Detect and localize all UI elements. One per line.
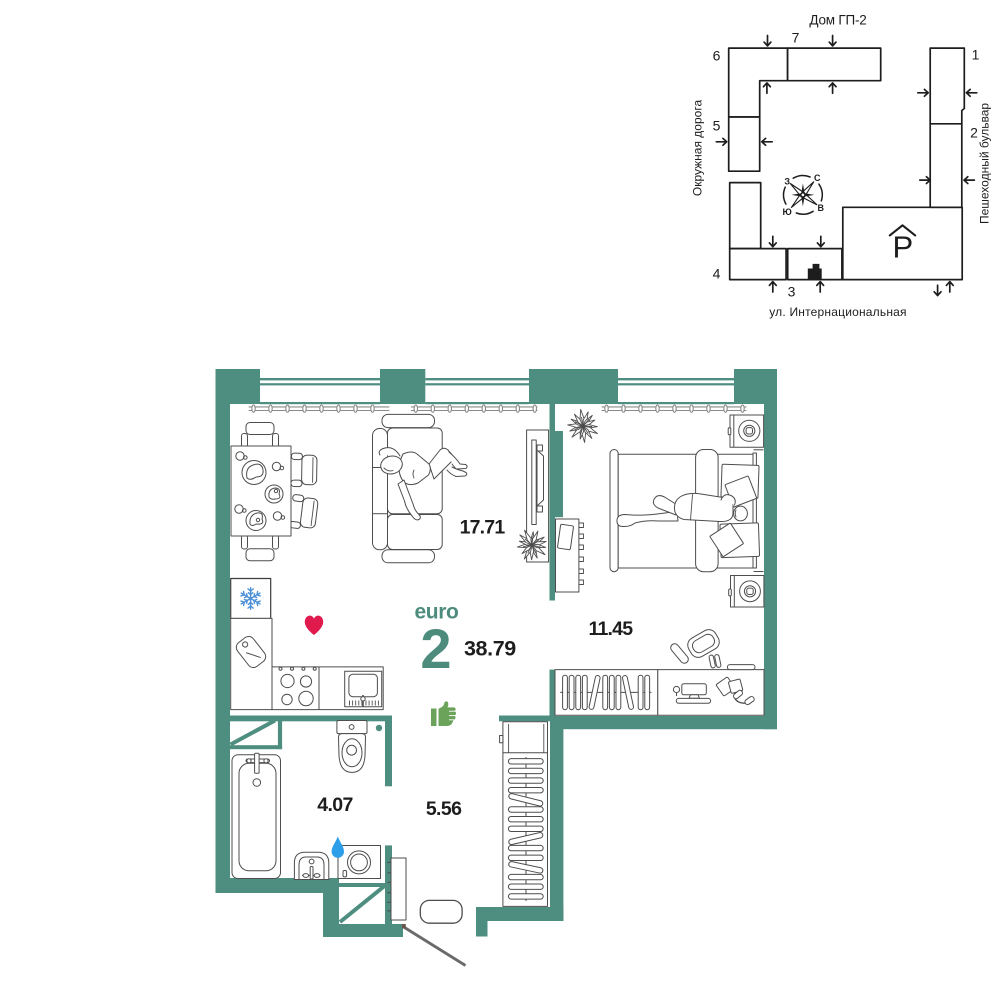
svg-text:Окружная дорога: Окружная дорога: [691, 100, 705, 197]
svg-text:P: P: [892, 230, 913, 265]
svg-text:4: 4: [713, 266, 721, 282]
svg-text:1: 1: [972, 47, 980, 63]
svg-text:11.45: 11.45: [589, 618, 634, 640]
svg-text:5.56: 5.56: [426, 798, 462, 820]
svg-text:6: 6: [713, 48, 721, 64]
svg-text:Дом ГП-2: Дом ГП-2: [809, 13, 866, 28]
svg-text:2: 2: [970, 125, 978, 141]
svg-text:4.07: 4.07: [317, 794, 353, 816]
svg-text:В: В: [818, 203, 825, 213]
svg-text:2: 2: [420, 617, 451, 680]
svg-text:3: 3: [788, 284, 796, 300]
svg-text:С: С: [814, 173, 821, 183]
svg-text:Ю: Ю: [783, 207, 792, 217]
svg-text:ул. Интернациональная: ул. Интернациональная: [769, 305, 906, 319]
svg-text:7: 7: [792, 30, 800, 46]
svg-text:З: З: [784, 177, 790, 187]
svg-text:Пешеходный бульвар: Пешеходный бульвар: [978, 103, 992, 224]
svg-text:38.79: 38.79: [464, 637, 516, 661]
svg-text:5: 5: [713, 118, 721, 134]
svg-text:17.71: 17.71: [460, 516, 506, 538]
